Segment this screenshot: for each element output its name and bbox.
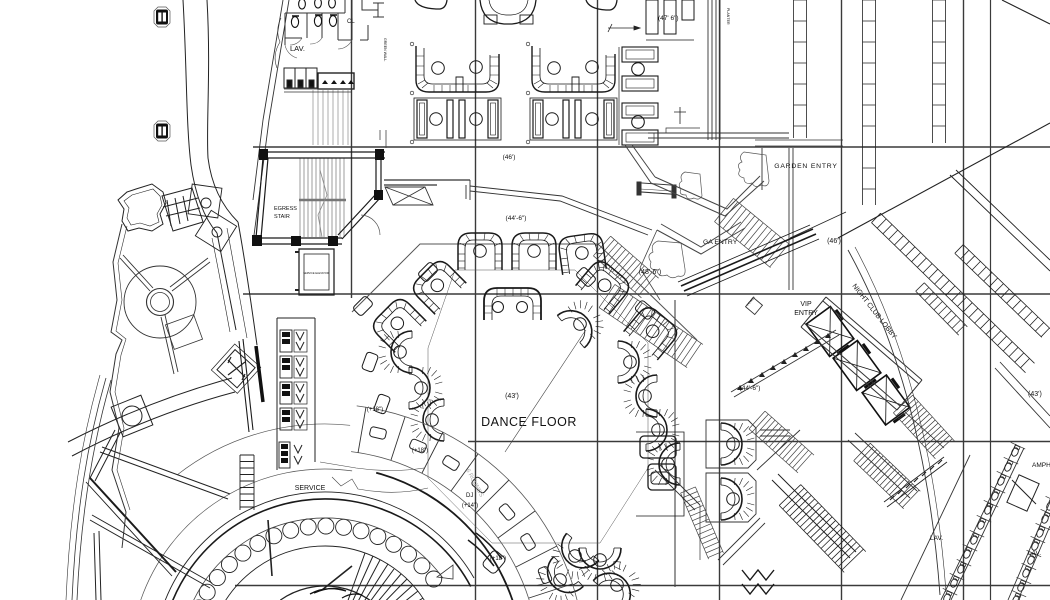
- svg-text:VIP: VIP: [800, 301, 812, 308]
- svg-text:DJ: DJ: [466, 493, 473, 499]
- svg-text:(44'-6"): (44'-6"): [506, 215, 527, 222]
- svg-text:(43'): (43'): [505, 393, 519, 400]
- svg-text:LAV.: LAV.: [290, 44, 305, 53]
- svg-text:(44'-6"): (44'-6"): [740, 385, 761, 392]
- svg-text:GREEN WALL: GREEN WALL: [383, 38, 387, 61]
- svg-text:(+18"): (+18"): [367, 407, 383, 413]
- svg-text:LAV.: LAV.: [1028, 550, 1041, 557]
- svg-text:AMPHITHEATRE: AMPHITHEATRE: [1032, 462, 1050, 469]
- svg-text:(46'): (46'): [827, 238, 841, 245]
- svg-text:CL: CL: [347, 19, 355, 25]
- svg-text:(46'): (46'): [503, 154, 516, 161]
- svg-text:PLANTER: PLANTER: [726, 8, 730, 25]
- svg-text:(+14"): (+14"): [462, 503, 478, 509]
- svg-text:SERVICE ELEVATOR: SERVICE ELEVATOR: [303, 271, 329, 275]
- svg-text:NIGHT CLUB LOBBY: NIGHT CLUB LOBBY: [850, 283, 897, 341]
- svg-text:GARDEN ENTRY: GARDEN ENTRY: [774, 163, 837, 170]
- svg-text:SERVICE: SERVICE: [295, 485, 326, 492]
- svg-text:STAIR: STAIR: [274, 214, 290, 220]
- svg-text:(47' 6"): (47' 6"): [658, 15, 679, 22]
- svg-text:GA ENTRY: GA ENTRY: [703, 239, 738, 246]
- svg-text:LAV.: LAV.: [930, 535, 943, 542]
- svg-text:POWER: POWER: [746, 295, 757, 307]
- svg-text:(48'-6"): (48'-6"): [639, 269, 662, 276]
- svg-text:EGRESS: EGRESS: [274, 206, 297, 212]
- svg-text:DANCE FLOOR: DANCE FLOOR: [481, 415, 577, 429]
- svg-text:(+18"): (+18"): [412, 448, 428, 454]
